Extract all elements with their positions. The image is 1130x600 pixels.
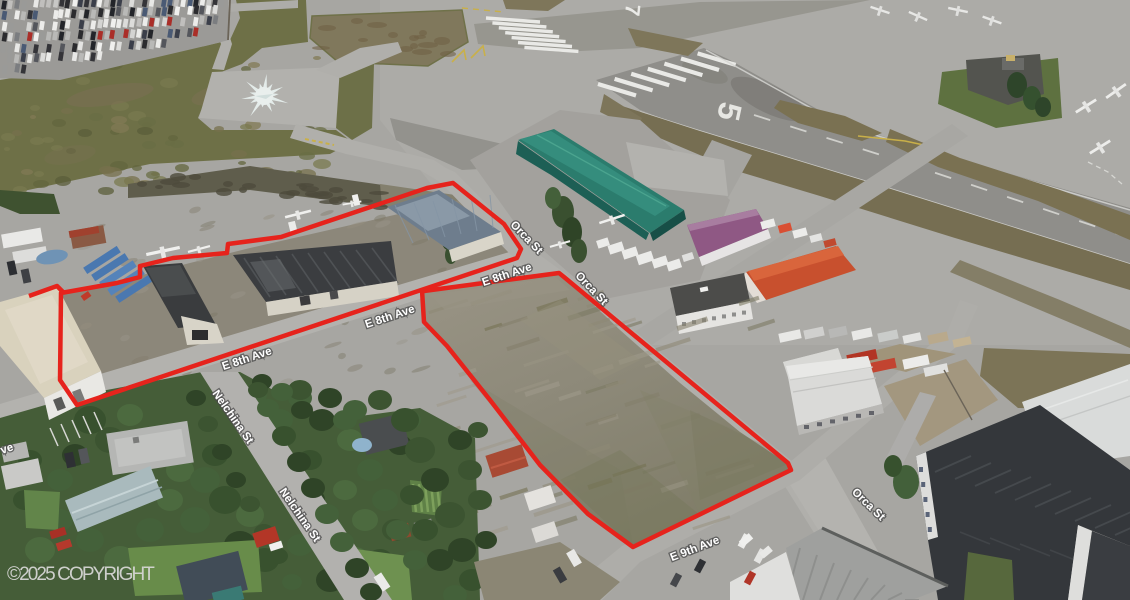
svg-text:©2025 COPYRIGHT: ©2025 COPYRIGHT [7, 564, 155, 585]
svg-text:7: 7 [620, 3, 644, 17]
